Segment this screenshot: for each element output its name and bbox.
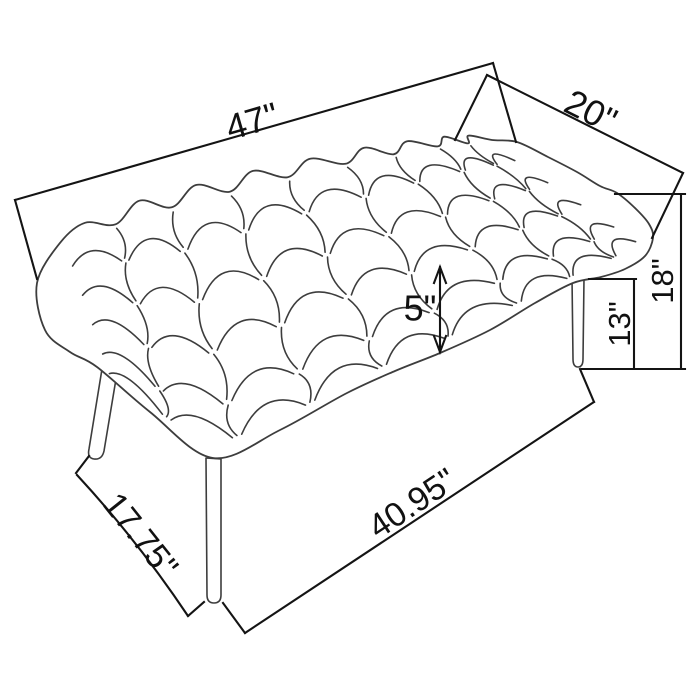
dim-legspan-length-ext-left xyxy=(223,603,245,633)
bench-leg-front xyxy=(206,458,221,603)
dim-legspan-depth-ext-bottom xyxy=(188,602,204,616)
dim-label-depth: 20" xyxy=(558,81,624,141)
dim-label-height: 18" xyxy=(645,258,680,304)
dim-label-length: 47" xyxy=(221,94,283,148)
bench-leg-right xyxy=(572,277,584,367)
dim-length-ext-right xyxy=(493,63,516,142)
bench-dimension-diagram: 47" 20" 18" 13" 5" 17.75" 40.95" xyxy=(0,0,700,700)
dim-label-cushion-thickness: 5" xyxy=(404,288,437,329)
dim-label-legspan-length: 40.95" xyxy=(362,461,464,546)
bench-cushion-outline xyxy=(36,136,653,459)
dim-legspan-length-ext-right xyxy=(580,369,594,402)
dim-length-ext-left xyxy=(15,200,37,279)
dim-legspan-depth-ext-top xyxy=(76,456,89,473)
bench-leg-left xyxy=(89,369,117,459)
dim-label-seat-clearance: 13" xyxy=(602,301,637,347)
dim-depth-ext-left xyxy=(455,75,487,140)
dim-label-legspan-depth: 17.75" xyxy=(95,486,185,586)
dim-depth-ext-right xyxy=(652,173,683,238)
diagram-canvas: 47" 20" 18" 13" 5" 17.75" 40.95" xyxy=(0,0,700,700)
